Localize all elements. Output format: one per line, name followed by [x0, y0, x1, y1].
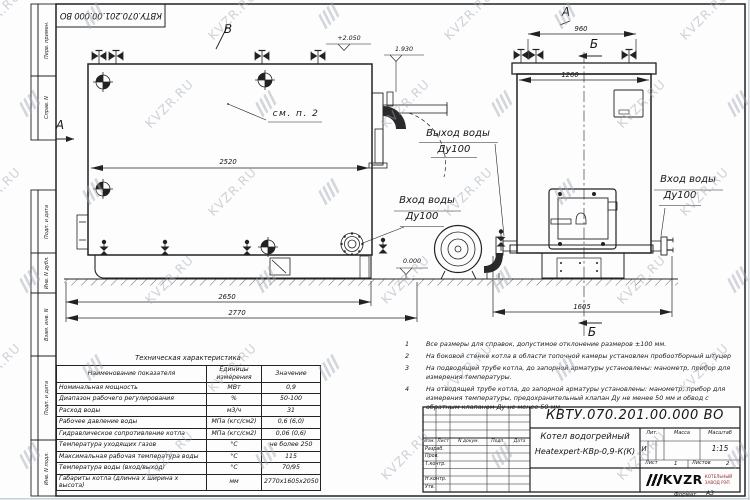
blower-fan [435, 226, 482, 280]
sheet-value: 1 [674, 461, 678, 467]
marker-b-section-bottom: Б [584, 326, 600, 340]
table-row: Номинальная мощностьМВт0,9 [57, 382, 321, 394]
param-unit: °С [207, 440, 262, 452]
sheets-value: 2 [726, 461, 730, 467]
see-note-label: см. п. 2 [266, 109, 326, 119]
scale-value: 1:15 [700, 445, 740, 454]
note-text: На подводящей трубе котла, до запорной а… [426, 364, 734, 383]
param-name: Максимальная рабочая температура воды [57, 451, 207, 463]
dim-2650: 2650 [197, 294, 257, 302]
col-header: Наименование показателя [57, 366, 207, 383]
stamp-perv-primen: Перв. примен. [38, 4, 56, 76]
notes-list: 1Все размеры для справок, допустимое отк… [398, 340, 734, 415]
stamp-podp-data-2: Подп. и дата [38, 356, 56, 440]
param-value: 115 [262, 451, 321, 463]
format-label: Формат [674, 492, 696, 498]
col-data: Дата [509, 439, 530, 444]
param-unit: МВт [207, 382, 262, 394]
logo-text: KVZR [663, 472, 703, 487]
elev-top: +2.050 [326, 35, 372, 42]
marker-b-top: В [218, 23, 238, 37]
table-row: Рабочее давление водыМПа (кгс/см2)0,6 (6… [57, 417, 321, 429]
table-row: Максимальная рабочая температура воды°С1… [57, 451, 321, 463]
param-value: 0,9 [262, 382, 321, 394]
param-value: 0,6 (6,0) [262, 417, 321, 429]
param-name: Диапазон рабочего регулирования [57, 394, 207, 406]
param-value: 31 [262, 405, 321, 417]
water-inlet-right-label: Вход воды [643, 174, 733, 186]
title-block-designation: КВТУ.070.201.00.000 ВО [532, 409, 738, 424]
col-podp: Подп. [487, 439, 509, 444]
dim-960: 960 [561, 26, 601, 34]
col-izm: Изм. [422, 439, 437, 444]
dim-2770: 2770 [207, 310, 267, 318]
sheets-label: Листов [692, 461, 711, 467]
marker-a-left: А [50, 119, 70, 133]
table-row: Диапазон рабочего регулирования%50-100 [57, 394, 321, 406]
lit-header: Лит. [640, 431, 664, 437]
table-row: Температура воды (вход/выход)°С70/95 [57, 463, 321, 475]
inlet-flange [340, 232, 363, 255]
front-left-nozzle-piping [484, 229, 517, 279]
table-row: Габариты котла (длинна х ширина х высота… [57, 474, 321, 491]
col-header: Значение [262, 366, 321, 383]
furnace-door [549, 189, 617, 249]
param-unit: м3/ч [207, 405, 262, 417]
col-doc: N докум. [450, 439, 487, 444]
param-value: 2770х1605х2050 [262, 474, 321, 491]
row-prov: Пров. [425, 454, 439, 460]
param-name: Расход воды [57, 405, 207, 417]
param-value: 70/95 [262, 463, 321, 475]
param-name: Габариты котла (длинна х ширина х высота… [57, 474, 207, 491]
note-item: 2На боковой стенке котла в области топоч… [398, 352, 734, 361]
param-value: не более 250 [262, 440, 321, 452]
dim-2520: 2520 [198, 159, 258, 167]
stamp-podp-data-1: Подп. и дата [38, 190, 56, 253]
water-inlet-dn: Ду100 [377, 211, 467, 223]
format-value: А3 [706, 491, 714, 498]
param-value: 50-100 [262, 394, 321, 406]
boiler-side-view [77, 51, 447, 279]
stamp-inv-podl: Инв. N подл. [38, 440, 56, 496]
company-logo: KVZR КОТЕЛЬНЫЙ ЗАВОД РЭП [641, 468, 739, 491]
scale-header: Масштаб [700, 431, 740, 437]
note-number: 3 [398, 364, 426, 383]
param-unit: °С [207, 463, 262, 475]
param-unit: МПа (кгс/см2) [207, 428, 262, 440]
water-inlet-label: Вход воды [382, 195, 472, 207]
row-utv: Утв. [425, 485, 435, 491]
elev-outlet: 1.930 [381, 46, 427, 53]
col-list: Лист [436, 439, 450, 444]
param-name: Температура воды (вход/выход) [57, 463, 207, 475]
tech-table: Наименование показателя Единицы измерени… [56, 365, 321, 491]
tech-table-title: Техническая характеристика [56, 355, 320, 363]
note-number: 1 [398, 340, 426, 349]
col-header: Единицы измерения [207, 366, 262, 383]
water-outlet-dn: Ду100 [409, 144, 499, 156]
param-name: Температура уходящих газов [57, 440, 207, 452]
sheet-label: Лист [645, 461, 658, 467]
param-name: Гидравлическое сопротивление котла [57, 428, 207, 440]
lit-value: И [640, 445, 648, 453]
elev-ground: 0.000 [389, 258, 435, 265]
row-razrab: Разраб. [425, 447, 444, 453]
stamp-vzam-inv: Взам. инв. N [38, 293, 56, 356]
stamp-inv-dubl: Инв. N дубл. [38, 253, 56, 293]
param-name: Рабочее давление воды [57, 417, 207, 429]
dim-1260: 1260 [550, 72, 590, 80]
param-value: 0,06 (0,6) [262, 428, 321, 440]
table-row: Температура уходящих газов°Сне более 250 [57, 440, 321, 452]
product-name-line2: Heatexpert-КВр-0,9-К(К) [531, 447, 639, 456]
param-name: Номинальная мощность [57, 382, 207, 394]
note-item: 3На подводящей трубе котла, до запорной … [398, 364, 734, 383]
dim-1605: 1605 [562, 304, 602, 312]
product-name-line1: Котел водогрейный [532, 433, 638, 443]
row-tkontr: Т.контр. [425, 462, 446, 468]
row-nkontr: Н.контр. [425, 477, 446, 483]
table-header-row: Наименование показателя Единицы измерени… [57, 366, 321, 383]
note-text: Все размеры для справок, допустимое откл… [426, 340, 734, 349]
marker-a-right: А [556, 6, 576, 20]
note-number: 4 [398, 385, 426, 413]
drawing-sheet: КВТУ.070.201.00.000 ВО Перв. примен. Спр… [0, 0, 750, 500]
water-outlet-label: Выход воды [413, 128, 503, 140]
param-unit: мм [207, 474, 262, 491]
param-unit: МПа (кгс/см2) [207, 417, 262, 429]
param-unit: °С [207, 451, 262, 463]
mass-header: Масса [664, 431, 700, 437]
note-item: 1Все размеры для справок, допустимое отк… [398, 340, 734, 349]
table-row: Расход водым3/ч31 [57, 405, 321, 417]
param-unit: % [207, 394, 262, 406]
note-text: На боковой стенке котла в области топочн… [426, 352, 734, 361]
water-inlet-right-dn: Ду100 [635, 190, 725, 202]
note-number: 2 [398, 352, 426, 361]
marker-b-section-top: Б [586, 38, 602, 52]
kvzr-stripes-icon [646, 474, 663, 486]
table-row: Гидравлическое сопротивление котлаМПа (к… [57, 428, 321, 440]
company-name-line2: ЗАВОД РЭП [705, 480, 732, 485]
designation-rotated: КВТУ.070.201.00.000 ВО [57, 5, 165, 27]
